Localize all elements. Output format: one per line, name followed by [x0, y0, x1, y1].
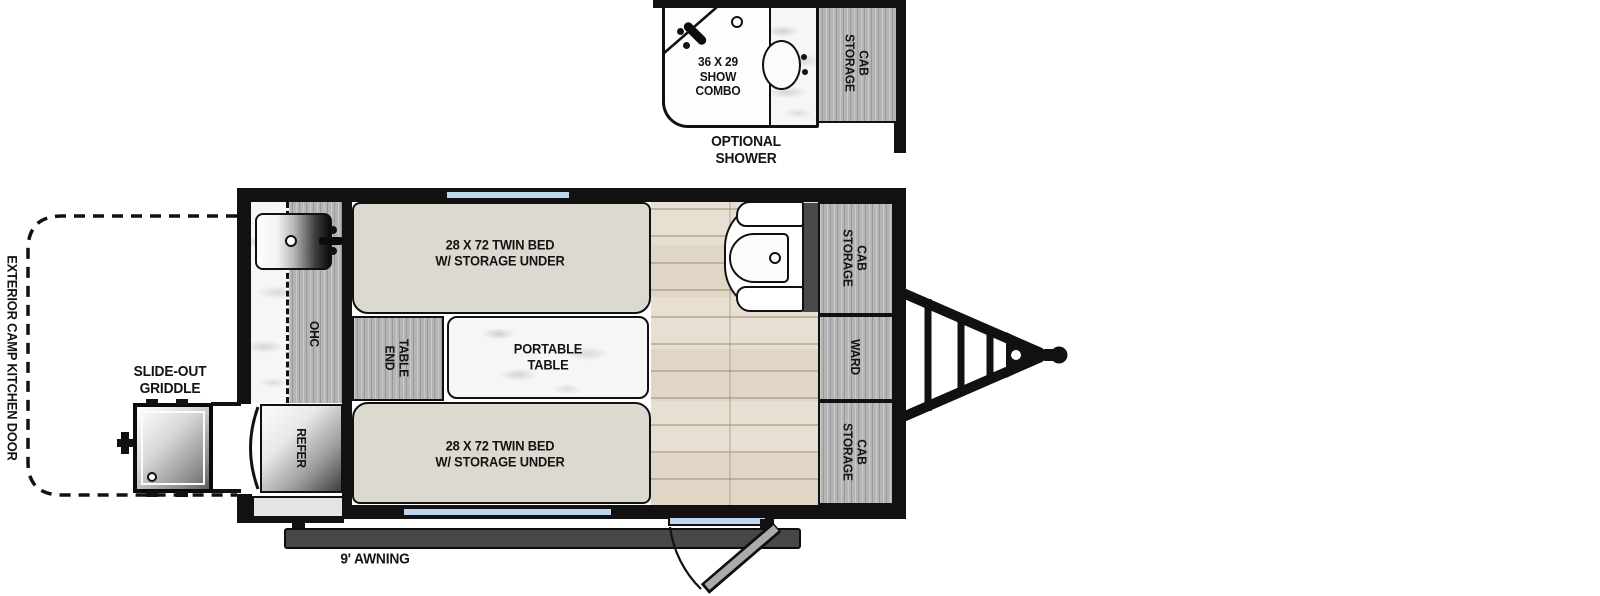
- label-line: 28 X 72 TWIN BED: [435, 438, 564, 454]
- refer-label: REFER: [294, 428, 308, 468]
- storage-cab-top-label: STORAGE CAB: [841, 229, 868, 287]
- linework-layer: [0, 0, 1600, 596]
- label-line: EXTERIOR CAMP KITCHEN DOOR: [5, 255, 20, 460]
- portable-table-label: PORTABLE TABLE: [514, 341, 582, 372]
- exterior-camp-kitchen-door-label: EXTERIOR CAMP KITCHEN DOOR: [5, 255, 20, 460]
- hitch-frame: [903, 293, 1068, 417]
- floorplan-diagram: STORAGE CAB 36 X 29 SHOW COMBO OPTIONAL …: [0, 0, 1600, 596]
- label-line: GRIDDLE: [134, 381, 207, 398]
- label-line: TABLE: [514, 357, 582, 373]
- label-line: CAB: [855, 439, 869, 464]
- slide-out-griddle-label: SLIDE-OUT GRIDDLE: [134, 364, 207, 398]
- label-line: STORAGE: [841, 423, 855, 481]
- label-line: 9' AWNING: [340, 552, 409, 569]
- hitch-coupler-ball: [1051, 347, 1068, 364]
- camp-kitchen-door-swing: [28, 216, 237, 495]
- bed-top-label: 28 X 72 TWIN BED W/ STORAGE UNDER: [435, 237, 564, 268]
- label-line: PORTABLE: [514, 341, 582, 357]
- label-line: CAB: [855, 245, 869, 270]
- entry-door-arc: [670, 527, 701, 589]
- awning-label: 9' AWNING: [340, 552, 409, 569]
- label-line: SLIDE-OUT: [134, 364, 207, 381]
- label-line: OHC: [307, 321, 321, 347]
- griddle-door-arc: [251, 407, 259, 489]
- entry-door-panel: [705, 527, 777, 589]
- shower-glass-line: [663, 7, 717, 54]
- label-line: WARD: [848, 339, 862, 375]
- label-line: END: [383, 346, 397, 371]
- ohc-label: OHC: [307, 321, 321, 347]
- bed-bottom-label: 28 X 72 TWIN BED W/ STORAGE UNDER: [435, 438, 564, 469]
- label-line: W/ STORAGE UNDER: [435, 253, 564, 269]
- end-table-label: END TABLE: [383, 339, 410, 377]
- label-line: REFER: [294, 428, 308, 468]
- label-line: STORAGE: [841, 229, 855, 287]
- storage-cab-bottom-label: STORAGE CAB: [841, 423, 868, 481]
- ward-label: WARD: [848, 339, 862, 375]
- label-line: 28 X 72 TWIN BED: [435, 237, 564, 253]
- label-line: W/ STORAGE UNDER: [435, 454, 564, 470]
- label-line: TABLE: [397, 339, 411, 377]
